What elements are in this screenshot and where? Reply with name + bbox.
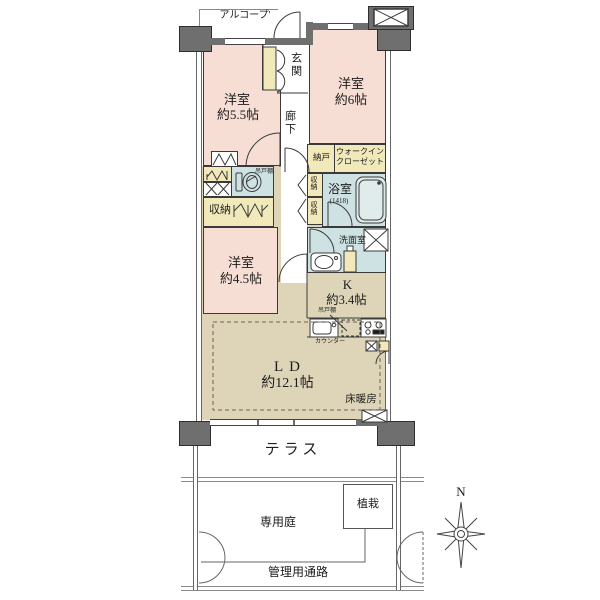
floor-plan: アルコープ' 玄関 廊下 洋室 約5.5帖 洋室 約6帖 洋室 約4.5帖 納戸… bbox=[0, 0, 600, 600]
label-cupboard-kitchen: 吊戸棚 bbox=[316, 308, 338, 315]
gate-left bbox=[199, 532, 225, 583]
washbasin-icon bbox=[311, 253, 341, 271]
label-cupboard-toilet: 吊戸棚 bbox=[253, 169, 275, 176]
bathroom-door-arc bbox=[328, 202, 352, 226]
hanger-closet-zigzag bbox=[207, 171, 227, 180]
label-private-garden: 専用庭 bbox=[250, 516, 306, 530]
shoe-cabinet bbox=[263, 47, 285, 92]
label-bath: 浴室 bbox=[323, 183, 357, 197]
label-corridor: 廊下 bbox=[283, 110, 296, 136]
label-living: LD bbox=[252, 359, 328, 376]
label-terrace: テラス bbox=[253, 442, 333, 459]
bedroom-5-5-door-arc bbox=[246, 133, 280, 167]
closet-folddoor-zigzag bbox=[213, 154, 236, 165]
label-wic-2: クローゼット bbox=[334, 157, 386, 166]
water-heater-box bbox=[344, 246, 356, 272]
label-kitchen-size: 約3.4帖 bbox=[310, 293, 383, 307]
label-compass-n: N bbox=[453, 485, 469, 500]
label-bath-size: (1418) bbox=[322, 197, 356, 205]
label-bedroom3-size: 約4.5帖 bbox=[203, 272, 279, 287]
label-living-size: 約12.1帖 bbox=[240, 376, 335, 392]
bathtub-icon bbox=[356, 177, 386, 223]
plan-linework bbox=[0, 0, 600, 600]
refrigerator-space bbox=[366, 341, 389, 351]
label-counter: カウンター bbox=[314, 339, 346, 346]
gate-right bbox=[397, 532, 423, 583]
label-closet-lower: 収納 bbox=[310, 201, 318, 215]
living-door-arc bbox=[279, 254, 307, 282]
garden-boundary-line bbox=[201, 529, 365, 562]
label-service-passage: 管理用通路 bbox=[260, 566, 336, 580]
closet-main-hanger bbox=[234, 204, 268, 217]
ps-duct-x bbox=[374, 9, 408, 26]
label-bedroom2-name: 洋室 bbox=[316, 77, 386, 92]
kitchen-cupboard-dashed bbox=[342, 320, 360, 336]
kitchen-service-door-arc bbox=[376, 351, 389, 364]
label-entrance: 玄関 bbox=[289, 52, 302, 78]
label-bedroom3-name: 洋室 bbox=[205, 256, 277, 271]
compass-rose bbox=[437, 502, 485, 568]
label-closet-main: 収納 bbox=[205, 204, 235, 217]
label-wic-1: ウォークイン bbox=[334, 147, 386, 156]
label-floor-heating: 床暖房 bbox=[335, 394, 387, 406]
label-bedroom2-size: 約6帖 bbox=[316, 93, 386, 108]
label-planting: 植栽 bbox=[346, 498, 390, 511]
label-closet-upper: 収納 bbox=[310, 176, 318, 190]
stove-icon bbox=[361, 319, 386, 337]
living-corner-duct-x bbox=[362, 410, 387, 422]
label-washroom: 洗面室 bbox=[330, 235, 375, 245]
corridor-door-arc bbox=[285, 148, 309, 172]
label-storeroom: 納戸 bbox=[308, 153, 335, 163]
label-bedroom1-name: 洋室 bbox=[202, 93, 272, 108]
label-alcove: アルコープ' bbox=[205, 10, 285, 22]
bifold-chevrons bbox=[298, 175, 306, 223]
xx-pattern bbox=[206, 183, 229, 195]
label-kitchen: K bbox=[320, 278, 375, 293]
label-bedroom1-size: 約5.5帖 bbox=[198, 108, 278, 123]
